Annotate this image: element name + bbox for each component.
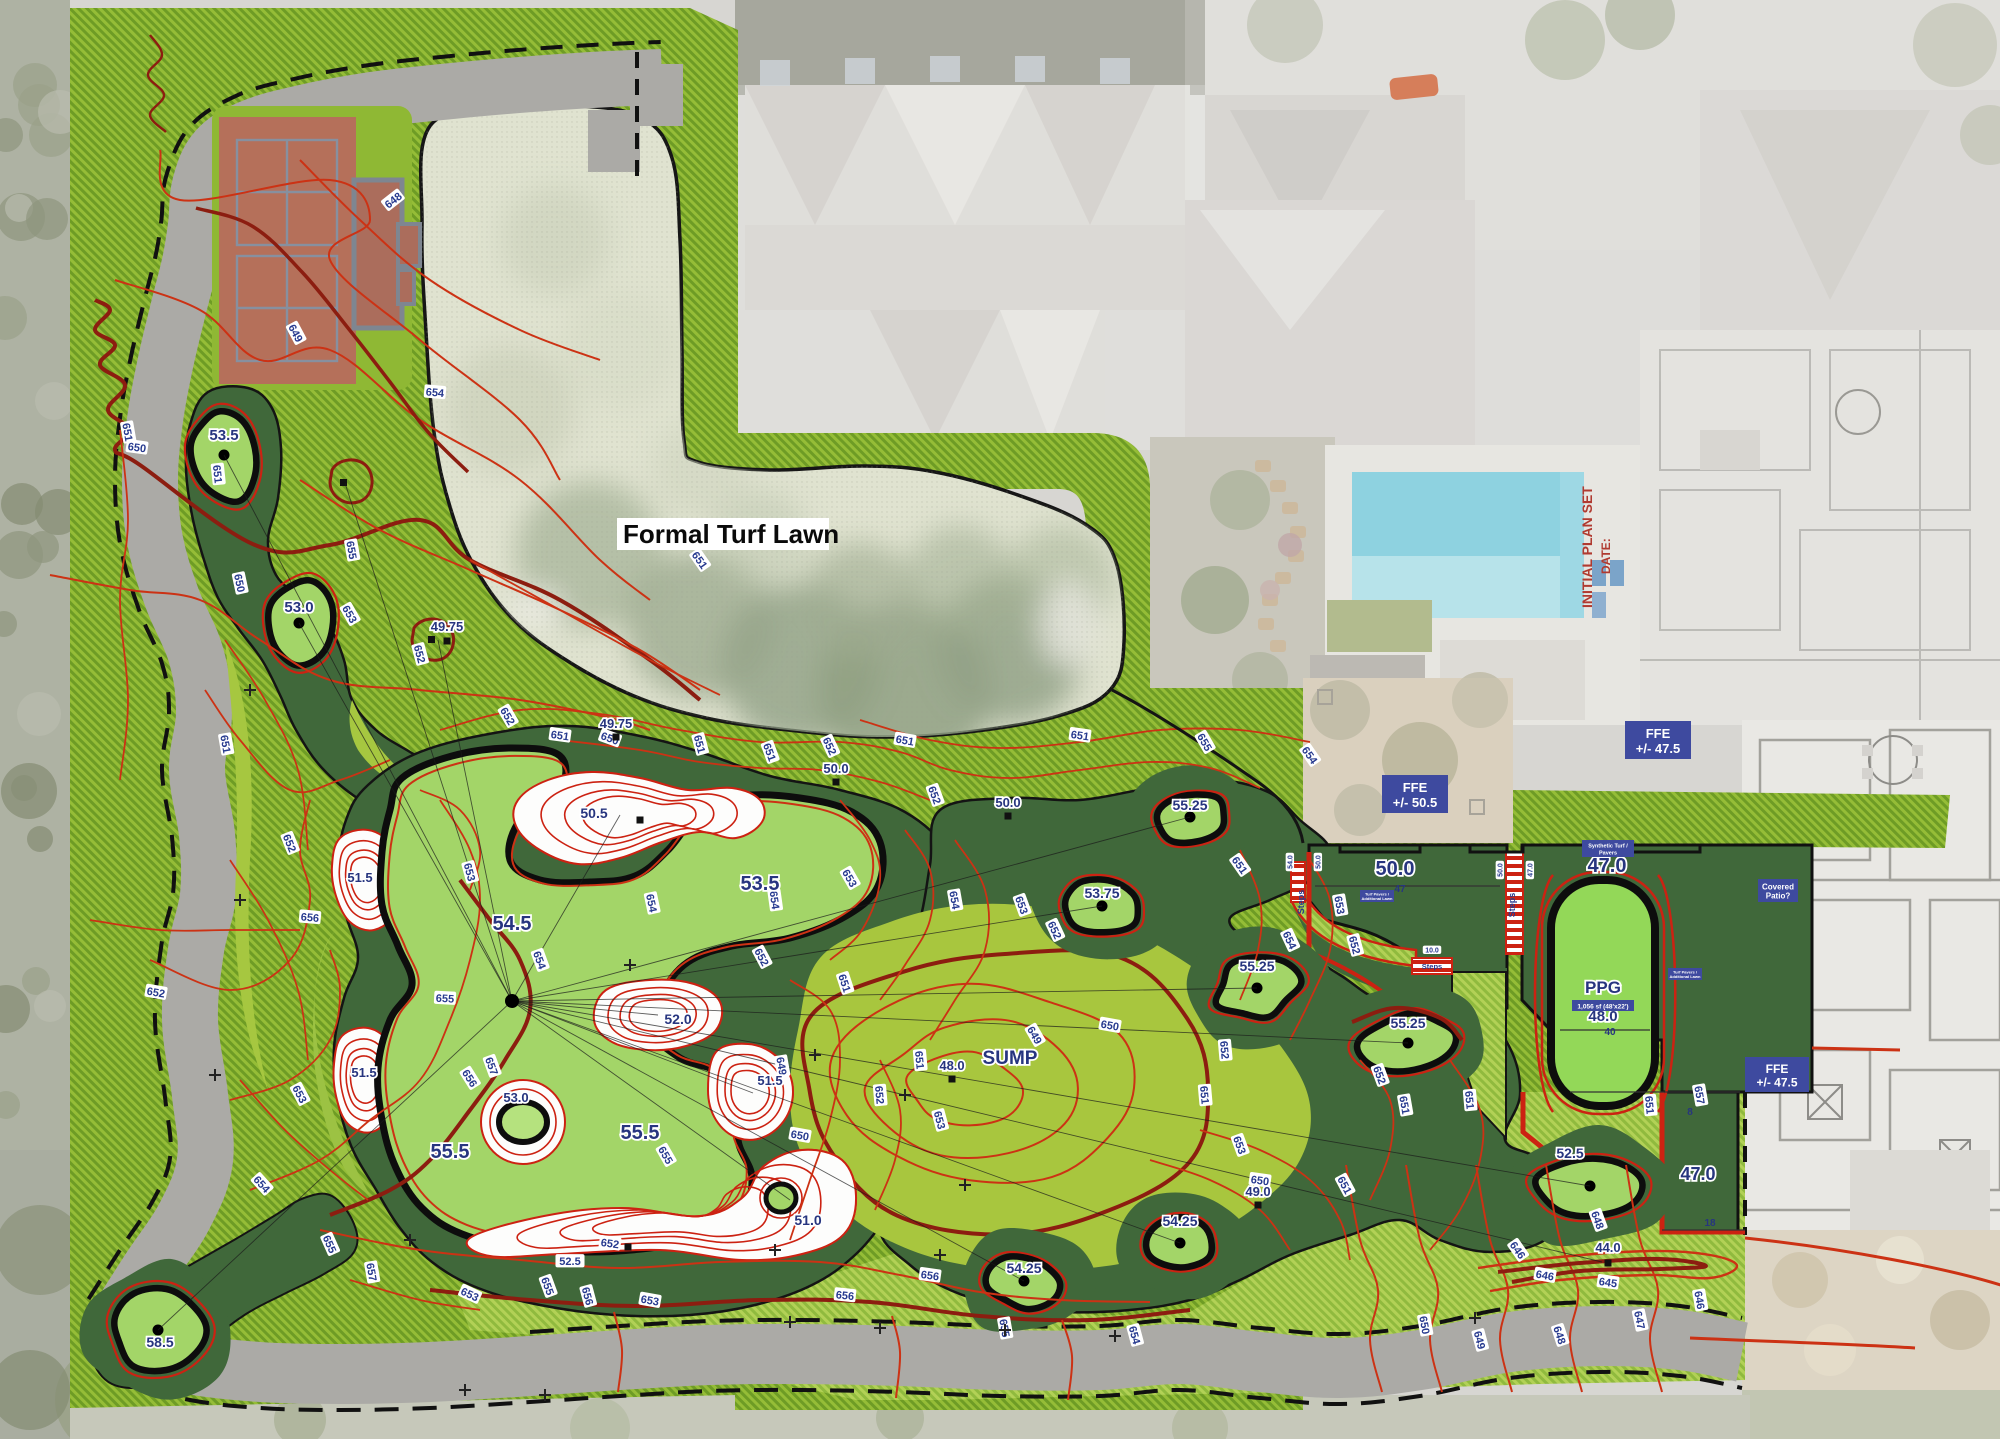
svg-text:651: 651 [1462,1090,1476,1109]
svg-text:+/- 47.5: +/- 47.5 [1636,741,1680,756]
svg-text:49.75: 49.75 [431,619,464,634]
svg-text:55.5: 55.5 [431,1141,470,1163]
svg-text:FFE: FFE [1766,1062,1789,1076]
svg-text:53.0: 53.0 [503,1090,528,1105]
svg-text:652: 652 [1217,1040,1231,1059]
svg-text:Additional Lawn: Additional Lawn [1670,974,1701,979]
svg-text:645: 645 [1598,1276,1618,1290]
svg-text:55.25: 55.25 [1239,958,1274,974]
svg-text:651: 651 [550,729,570,743]
svg-text:+/- 47.5: +/- 47.5 [1756,1076,1797,1090]
svg-text:656: 656 [835,1289,855,1303]
svg-text:44.0: 44.0 [1595,1240,1620,1255]
svg-text:8: 8 [1687,1107,1693,1118]
svg-text:52.5: 52.5 [1556,1145,1583,1161]
svg-text:Pavers: Pavers [1599,850,1617,856]
svg-text:47.0: 47.0 [1528,863,1535,877]
svg-text:650: 650 [127,441,147,455]
svg-text:+/- 50.5: +/- 50.5 [1393,795,1437,810]
svg-text:10.0: 10.0 [1425,948,1439,955]
svg-text:50.5: 50.5 [580,805,607,821]
svg-text:50.0: 50.0 [1498,863,1505,877]
svg-text:18: 18 [1704,1218,1716,1229]
svg-text:47.0: 47.0 [1588,855,1627,877]
svg-text:47.0: 47.0 [1680,1164,1715,1184]
svg-text:PPG: PPG [1585,978,1621,997]
svg-text:652: 652 [872,1085,886,1104]
svg-text:47: 47 [1394,884,1406,895]
svg-text:656: 656 [920,1269,940,1283]
svg-text:1,056 sf (48'x22'): 1,056 sf (48'x22') [1577,1003,1628,1010]
svg-text:Patio?: Patio? [1766,891,1791,900]
svg-text:49.75: 49.75 [600,716,633,731]
svg-text:INITIAL PLAN SET: INITIAL PLAN SET [1579,486,1595,608]
svg-text:651: 651 [1197,1085,1211,1104]
svg-text:654: 654 [425,386,445,400]
svg-text:50.0: 50.0 [823,761,848,776]
svg-text:DATE:: DATE: [1599,538,1613,574]
svg-text:Synthetic Turf /: Synthetic Turf / [1588,844,1628,850]
svg-text:651: 651 [912,1050,926,1069]
svg-text:53.75: 53.75 [1084,885,1119,901]
svg-text:51.5: 51.5 [351,1065,376,1080]
svg-text:55.5: 55.5 [621,1122,660,1144]
svg-text:58.5: 58.5 [146,1334,173,1350]
svg-text:FFE: FFE [1646,726,1671,741]
svg-text:Additional Lawn: Additional Lawn [1362,896,1393,901]
svg-text:54.25: 54.25 [1162,1213,1197,1229]
svg-text:50.0: 50.0 [995,795,1020,810]
svg-text:55.25: 55.25 [1390,1015,1425,1031]
svg-text:52.0: 52.0 [664,1011,691,1027]
svg-text:50.0: 50.0 [1316,855,1323,869]
svg-text:655: 655 [435,993,454,1006]
svg-text:SUMP: SUMP [983,1048,1038,1069]
svg-text:652: 652 [600,1237,620,1251]
svg-text:49.0: 49.0 [1245,1184,1270,1199]
svg-text:54.5: 54.5 [493,913,532,935]
svg-text:53.0: 53.0 [284,599,313,616]
svg-text:Steps: Steps [1422,962,1442,971]
svg-text:52.5: 52.5 [559,1256,580,1268]
svg-text:Formal Turf Lawn: Formal Turf Lawn [623,519,839,549]
svg-text:Steps: Steps [1507,893,1517,918]
svg-text:40: 40 [1604,1027,1616,1038]
svg-text:51.5: 51.5 [757,1073,782,1088]
svg-text:48.0: 48.0 [939,1058,964,1073]
svg-text:53.5: 53.5 [209,427,238,444]
svg-text:651: 651 [1642,1095,1656,1114]
svg-text:54.25: 54.25 [1006,1260,1041,1276]
svg-text:55.25: 55.25 [1172,797,1207,813]
svg-text:53.5: 53.5 [741,873,780,895]
svg-text:51.5: 51.5 [347,870,372,885]
svg-text:651: 651 [210,464,224,484]
svg-text:50.0: 50.0 [1376,858,1415,880]
svg-text:54.0: 54.0 [1288,855,1295,869]
svg-text:51.0: 51.0 [794,1212,821,1228]
svg-text:656: 656 [300,911,319,925]
svg-text:651: 651 [1070,729,1090,743]
svg-text:Covered: Covered [1762,882,1794,891]
svg-text:Steps: Steps [1296,890,1306,915]
svg-text:FFE: FFE [1403,780,1428,795]
